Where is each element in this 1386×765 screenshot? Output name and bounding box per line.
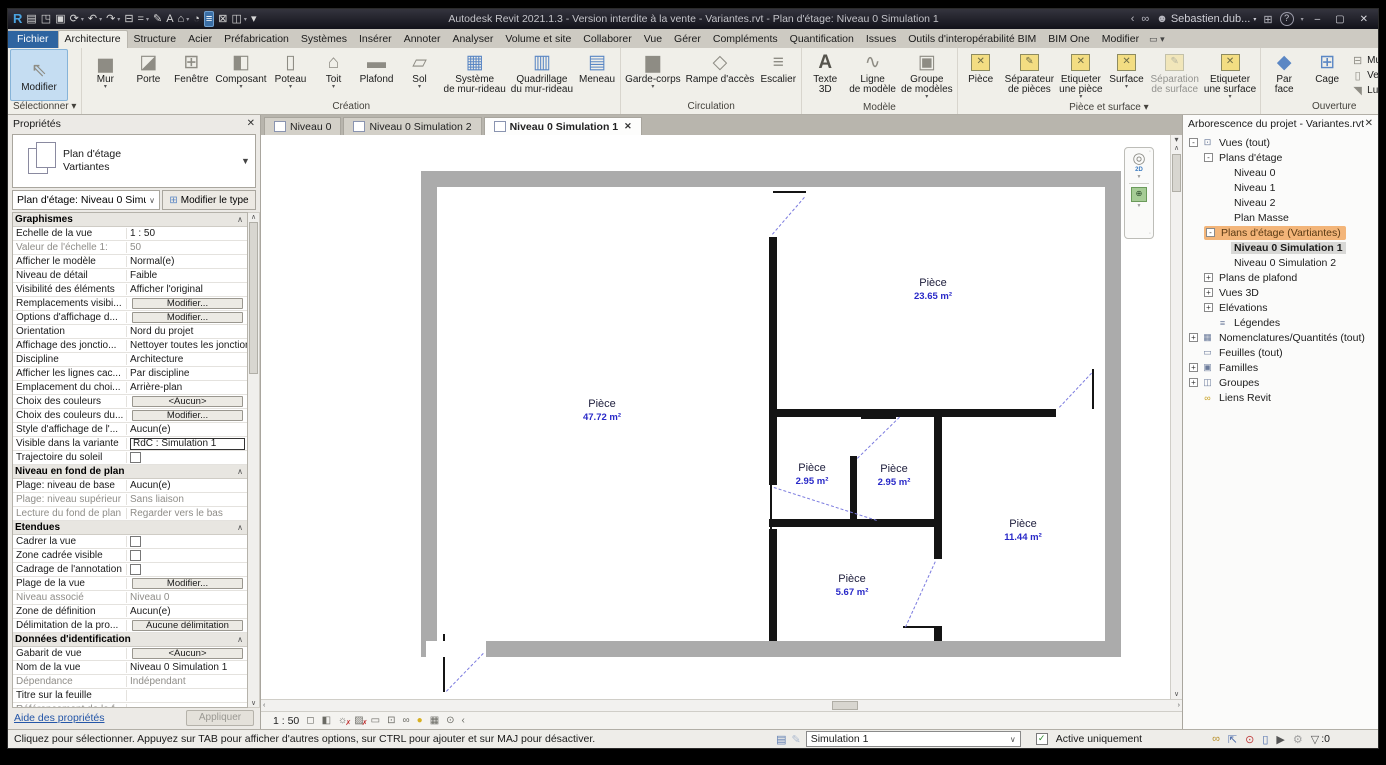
wall-opening-button[interactable]: ⊟Mur	[1351, 53, 1378, 67]
property-value: Aucun(e)	[127, 606, 247, 617]
property-row: Nom de la vueNiveau 0 Simulation 1	[13, 661, 247, 675]
ribbon-tab-compl-ments[interactable]: Compléments	[707, 31, 784, 48]
property-row: DépendanceIndépendant	[13, 675, 247, 689]
show-crop-region-icon[interactable]: ⊡	[387, 715, 395, 726]
ribbon-tab-structure[interactable]: Structure	[128, 31, 183, 48]
property-value: Nettoyer toutes les jonctions de...	[127, 340, 247, 351]
property-button[interactable]: Modifier...	[132, 298, 243, 309]
property-checkbox[interactable]	[130, 564, 141, 575]
tag-area-room-glyph: ✕	[1221, 54, 1240, 71]
view-tab-label: Niveau 0	[290, 121, 331, 133]
property-value: Regarder vers le bas	[127, 508, 247, 519]
ribbon-tab-collaborer[interactable]: Collaborer	[577, 31, 637, 48]
property-row: Visible dans la varianteRdC : Simulation…	[13, 437, 247, 451]
ceiling-label: Plafond	[360, 75, 394, 85]
view-tab-close-icon[interactable]: ✕	[624, 121, 632, 132]
open-icon[interactable]: ◳	[41, 12, 51, 26]
railing-button[interactable]: ▆Garde-corps▾	[623, 49, 683, 101]
window-title: Autodesk Revit 2021.1.3 - Version interd…	[256, 13, 1130, 25]
tree-expander-icon[interactable]: +	[1204, 273, 1213, 282]
wall-opening-label: Mur	[1367, 55, 1378, 66]
room-room-glyph: ✕	[971, 54, 990, 71]
ribbon-tab-vue[interactable]: Vue	[638, 31, 668, 48]
drag-elements-on-selection-icon[interactable]: ▶	[1276, 733, 1284, 746]
reveal-hidden-elements-icon[interactable]: ●	[417, 715, 423, 726]
room-button[interactable]: ✕Pièce	[960, 49, 1002, 102]
model-line-button[interactable]: ∿Lignede modèle	[847, 49, 898, 102]
room-name: Pièce	[1004, 518, 1042, 531]
drawing-area: Niveau 0Niveau 0 Simulation 2Niveau 0 Si…	[261, 115, 1182, 729]
search-icon[interactable]: ∞	[1141, 13, 1149, 25]
property-value[interactable]	[127, 564, 247, 575]
property-name: Niveau associé	[13, 592, 127, 603]
navbar-divider	[1129, 183, 1149, 184]
property-button[interactable]: Modifier...	[132, 410, 243, 421]
view-control-bar: 1 : 50 ◻◧☼✗▨✗▭⊡∞●▦⊙‹	[261, 711, 1182, 729]
curtain-system-button[interactable]: ▦Systèmede mur-rideau	[442, 49, 508, 101]
properties-help-link[interactable]: Aide des propriétés	[14, 712, 104, 724]
app-menu-icon[interactable]: R	[13, 12, 22, 26]
room-area-panel-label[interactable]: Pièce et surface ▾	[958, 102, 1261, 114]
model-panel-label[interactable]: Modèle	[802, 102, 956, 114]
tree-item-niveau-0-simulation-2[interactable]: Niveau 0 Simulation 2	[1183, 255, 1378, 270]
close-hidden-windows-icon[interactable]: ⊠	[218, 12, 227, 26]
project-browser-header: Arborescence du projet - Variantes.rvt ✕	[1183, 115, 1378, 132]
section-collapse-icon[interactable]: ∧	[237, 523, 247, 532]
room-tag[interactable]: Pièce2.95 m²	[796, 462, 829, 488]
door-label: Porte	[136, 75, 160, 85]
tree-item-niveau-2[interactable]: Niveau 2	[1183, 195, 1378, 210]
opening-buttons: ◆Parface⊞Cage⊟Mur▯Vertical◥Lucarne	[1261, 48, 1378, 101]
property-button[interactable]: Aucune délimitation	[132, 620, 243, 631]
area-boundary-icon: ✎	[1165, 50, 1184, 75]
home-icon[interactable]: ▤	[26, 12, 36, 26]
ceiling-button[interactable]: ▬Plafond	[356, 49, 398, 101]
zoom-menu-arrow-icon[interactable]: ▼	[1137, 203, 1142, 209]
room-label: Pièce	[968, 75, 993, 85]
section-title: Données d'identification	[15, 634, 131, 645]
section-title: Etendues	[15, 522, 60, 533]
door-button[interactable]: ◪Porte	[127, 49, 169, 101]
room-tag[interactable]: Pièce11.44 m²	[1004, 518, 1042, 544]
drawing-canvas[interactable]: Pièce23.65 m²Pièce47.72 m²Pièce2.95 m²Pi…	[261, 135, 1170, 699]
project-browser-title: Arborescence du projet - Variantes.rvt	[1188, 118, 1364, 130]
floor-plan[interactable]: Pièce23.65 m²Pièce47.72 m²Pièce2.95 m²Pi…	[421, 171, 1121, 657]
ribbon-tab-architecture[interactable]: Architecture	[58, 30, 128, 48]
tree-item-label: Plans d'étage (Vartiantes)	[1218, 227, 1344, 239]
properties-close-icon[interactable]: ✕	[247, 118, 255, 129]
property-value[interactable]: Modifier...	[127, 409, 247, 422]
property-value[interactable]	[127, 536, 247, 547]
close-button[interactable]: ✕	[1356, 14, 1372, 25]
minimize-button[interactable]: –	[1311, 14, 1325, 25]
instance-selector-arrow-icon: ∨	[146, 196, 155, 205]
view-tab-niveau-0-simulation-1[interactable]: Niveau 0 Simulation 1✕	[484, 117, 642, 135]
property-name: Choix des couleurs	[13, 396, 127, 407]
vscroll-up-icon[interactable]: ∧	[1174, 144, 1179, 152]
room-tag[interactable]: Pièce5.67 m²	[836, 573, 869, 599]
tree-item-groupes[interactable]: +◫Groupes	[1183, 375, 1378, 390]
ribbon-tab-volume-et-site[interactable]: Volume et site	[499, 31, 577, 48]
section-collapse-icon[interactable]: ∧	[237, 467, 247, 476]
property-name: Afficher les lignes cac...	[13, 368, 127, 379]
instance-selector[interactable]: Plan d'étage: Niveau 0 Simulation 1 ∨	[12, 190, 160, 210]
ribbon-tab-quantification[interactable]: Quantification	[784, 31, 860, 48]
viewtab-overflow-arrow-icon[interactable]: ▾	[1174, 135, 1178, 144]
property-row: Afficher le modèleNormal(e)	[13, 255, 247, 269]
temporary-hide-isolate-icon[interactable]: ∞	[403, 715, 410, 726]
roof-button[interactable]: ⌂Toit▾	[313, 49, 355, 101]
tree-item-vues-3d[interactable]: +Vues 3D	[1183, 285, 1378, 300]
room-tag[interactable]: Pièce47.72 m²	[583, 398, 621, 424]
detail-level-icon[interactable]: ◧	[322, 715, 331, 726]
section-graphismes[interactable]: Graphismes∧	[13, 213, 247, 227]
measure-icon[interactable]: =	[138, 12, 144, 26]
section-donn-es-d-identification[interactable]: Données d'identification∧	[13, 633, 247, 647]
view-tab-niveau-0-simulation-2[interactable]: Niveau 0 Simulation 2	[343, 117, 481, 135]
hscroll-right-icon[interactable]: ›	[1178, 702, 1182, 709]
ribbon-tab-modifier[interactable]: Modifier	[1096, 31, 1145, 48]
property-name: Plage: niveau de base	[13, 480, 127, 491]
model-text-button[interactable]: ATexte3D	[804, 49, 846, 102]
vertical-scrollbar[interactable]: ▾ ∧ ∨	[1170, 135, 1182, 699]
property-value: Aucun(e)	[127, 424, 247, 435]
collapse-search-icon[interactable]: ‹	[1131, 13, 1135, 25]
tree-item-niveau-0[interactable]: Niveau 0	[1183, 165, 1378, 180]
shadows-off-mark: ✗	[362, 719, 368, 727]
tag-area-button[interactable]: ✕Etiqueterune surface▾	[1202, 49, 1258, 102]
area-button[interactable]: ✕Surface▾	[1106, 49, 1148, 102]
property-value[interactable]: Modifier...	[127, 311, 247, 324]
stair-button[interactable]: ≡Escalier	[757, 49, 799, 101]
curtain-grid-button[interactable]: ▥Quadrillagedu mur-rideau	[509, 49, 575, 101]
ribbon-display-toggle[interactable]: ▭ ▾	[1149, 34, 1165, 48]
property-checkbox[interactable]	[130, 550, 141, 561]
worksharing-display-icon[interactable]: ▦	[430, 715, 439, 726]
plan-wall	[903, 626, 936, 628]
shaft-opening-button[interactable]: ⊞Cage	[1306, 49, 1348, 101]
door-swing-dashed-line	[446, 653, 484, 692]
save-icon[interactable]: ▣	[55, 12, 65, 26]
circulation-panel-label[interactable]: Circulation	[621, 101, 801, 114]
account-menu[interactable]: ☻ Sebastien.dub... ▾	[1156, 13, 1256, 25]
property-button[interactable]: Modifier...	[132, 578, 243, 589]
tag-room-room-glyph: ✕	[1071, 54, 1090, 71]
tree-item-nomenclatures-quantit-s-tout-[interactable]: +▦Nomenclatures/Quantités (tout)	[1183, 330, 1378, 345]
tree-item-niveau-1[interactable]: Niveau 1	[1183, 180, 1378, 195]
opening-by-face-button[interactable]: ◆Parface	[1263, 49, 1305, 101]
scroll-up-icon[interactable]: ∧	[251, 213, 256, 221]
tree-item-plans-d-tage[interactable]: -Plans d'étage	[1183, 150, 1378, 165]
restore-button[interactable]: ▢	[1331, 14, 1348, 25]
hscroll-left-icon[interactable]: ‹	[261, 702, 265, 709]
property-row: Cadrer la vue	[13, 535, 247, 549]
section-icon[interactable]: ◔	[193, 12, 200, 26]
model-text-label: Texte3D	[813, 75, 837, 95]
property-name: Zone de définition	[13, 606, 127, 617]
tree-item-plans-de-plafond[interactable]: +Plans de plafond	[1183, 270, 1378, 285]
select-pinned-elements-icon[interactable]: ⊙	[1245, 733, 1254, 746]
text-icon[interactable]: A	[166, 12, 173, 26]
title-bar: R▤◳▣⟳▾↶▾↷▾⊟=▾✎A⌂▾◔≡⊠◫▾▾ Autodesk Revit 2…	[8, 9, 1378, 29]
ribbon-tab-outils-d-interop-rabilit-bim[interactable]: Outils d'interopérabilité BIM	[902, 31, 1042, 48]
view-scale[interactable]: 1 : 50	[273, 715, 299, 727]
redo-icon[interactable]: ↷	[106, 12, 115, 26]
model-group-button[interactable]: ▣Groupede modèles▾	[899, 49, 955, 102]
section-niveau-en-fond-de-plan[interactable]: Niveau en fond de plan∧	[13, 465, 247, 479]
area-arrow-icon: ▾	[1125, 85, 1128, 91]
property-value[interactable]	[127, 452, 247, 463]
ribbon-panel-room-area: ✕Pièce✎Séparateurde pièces✕Etiqueterune …	[958, 48, 1262, 114]
tree-expander-icon[interactable]: +	[1204, 288, 1213, 297]
properties-scrollbar[interactable]: ∧ ∨	[248, 212, 260, 708]
tree-expander-icon[interactable]: -	[1204, 153, 1213, 162]
measure-arrow-icon[interactable]: ▾	[146, 16, 149, 23]
room-tag[interactable]: Pièce23.65 m²	[914, 277, 952, 303]
property-row: Emplacement du choi...Arrière-plan	[13, 381, 247, 395]
property-row: Niveau de détailFaible	[13, 269, 247, 283]
ribbon-tab-fichier[interactable]: Fichier	[8, 31, 58, 48]
property-value[interactable]: Aucune délimitation	[127, 619, 247, 632]
property-checkbox[interactable]	[130, 452, 141, 463]
property-name: Nom de la vue	[13, 662, 127, 673]
property-name: Valeur de l'échelle 1:	[13, 242, 127, 253]
opening-panel-label[interactable]: Ouverture	[1261, 101, 1378, 114]
ribbon-tab-issues[interactable]: Issues	[860, 31, 902, 48]
plan-wall	[934, 626, 942, 641]
project-browser-close-icon[interactable]: ✕	[1365, 118, 1373, 129]
properties-scroll-thumb[interactable]	[249, 222, 258, 374]
print-icon[interactable]: ⊟	[124, 12, 133, 26]
instance-selector-row: Plan d'étage: Niveau 0 Simulation 1 ∨ ⊞ …	[12, 190, 256, 210]
modify-button[interactable]: ⇖Modifier	[10, 49, 68, 101]
manage-variants-icon[interactable]: ▤	[776, 733, 786, 746]
switch-windows-icon[interactable]: ◫	[232, 12, 242, 26]
vertical-opening-label: Vertical	[1367, 70, 1378, 81]
room-separator-button[interactable]: ✎Séparateurde pièces	[1003, 49, 1056, 102]
undo-icon[interactable]: ↶	[88, 12, 97, 26]
tree-item-plan-masse[interactable]: Plan Masse	[1183, 210, 1378, 225]
sync-with-central-icon[interactable]: ⟳	[70, 12, 79, 26]
tag-room-arrow-icon: ▾	[1079, 95, 1082, 101]
property-name: Visible dans la variante	[13, 438, 127, 449]
tree-expander-icon[interactable]: +	[1204, 303, 1213, 312]
views-icon: ⊡	[1201, 137, 1214, 148]
app-store-icon[interactable]: ⊞	[1263, 13, 1272, 26]
hscroll-thumb[interactable]	[832, 701, 858, 710]
tree-item-label: Feuilles (tout)	[1216, 347, 1286, 359]
steering-wheel-icon[interactable]: ◎	[1132, 151, 1145, 166]
curtain-grid-label: Quadrillagedu mur-rideau	[511, 75, 573, 95]
room-name: Pièce	[914, 277, 952, 290]
tag-area-arrow-icon: ▾	[1229, 95, 1232, 101]
property-name: Titre sur la feuille	[13, 690, 127, 701]
property-button[interactable]: <Aucun>	[132, 396, 243, 407]
room-tag[interactable]: Pièce2.95 m²	[878, 463, 911, 489]
ribbon-tab-pr-fabrication[interactable]: Préfabrication	[218, 31, 295, 48]
room-area: 5.67 m²	[836, 586, 869, 599]
section-etendues[interactable]: Etendues∧	[13, 521, 247, 535]
property-name: Plage: niveau supérieur	[13, 494, 127, 505]
crop-region-icon[interactable]: ▭	[371, 715, 380, 726]
tree-item-feuilles-tout-[interactable]: ▭Feuilles (tout)	[1183, 345, 1378, 360]
help-icon[interactable]: ?	[1280, 12, 1294, 26]
tree-item-label: Niveau 0	[1231, 167, 1278, 179]
area-boundary-label: Séparationde surface	[1151, 75, 1199, 95]
variants-toolbar: ▤✎ Simulation 1 ∨ ✓ Active uniquement	[776, 731, 1142, 747]
select-panel-label[interactable]: Sélectionner ▾	[8, 101, 81, 114]
property-row: Plage: niveau de baseAucun(e)	[13, 479, 247, 493]
stair-icon: ≡	[773, 50, 784, 75]
type-selector-arrow-icon[interactable]: ▼	[241, 156, 255, 166]
view-tab-niveau-0[interactable]: Niveau 0	[264, 117, 341, 135]
property-row: Niveau associéNiveau 0	[13, 591, 247, 605]
ribbon-tab-annoter[interactable]: Annoter	[398, 31, 447, 48]
property-value[interactable]: RdC : Simulation 1	[127, 438, 247, 450]
property-button[interactable]: <Aucun>	[132, 648, 243, 659]
property-value[interactable]: <Aucun>	[127, 647, 247, 660]
sync-with-central-arrow-icon[interactable]: ▾	[81, 16, 84, 23]
constraints-icon[interactable]: ⊙	[446, 715, 454, 726]
switch-windows-arrow-icon[interactable]: ▾	[244, 16, 247, 23]
tree-expander-icon[interactable]: +	[1189, 363, 1198, 372]
tree-expander-icon[interactable]: -	[1189, 138, 1198, 147]
vscroll-down-icon[interactable]: ∨	[1174, 690, 1179, 698]
component-button[interactable]: ◧Composant▾	[213, 49, 268, 101]
floor-icon: ▱	[412, 50, 427, 75]
shadows-icon[interactable]: ▨✗	[354, 715, 363, 726]
tree-item-niveau-0-simulation-1[interactable]: Niveau 0 Simulation 1	[1183, 240, 1378, 255]
visual-style-icon[interactable]: ◻	[306, 715, 314, 726]
property-value[interactable]: Modifier...	[127, 297, 247, 310]
scroll-down-icon[interactable]: ∨	[251, 699, 256, 707]
property-row: Zone de définitionAucun(e)	[13, 605, 247, 619]
zoom-region-icon[interactable]: ⊕	[1131, 187, 1147, 202]
aligned-dimension-icon[interactable]: ✎	[153, 12, 162, 26]
ramp-button[interactable]: ◇Rampe d'accès	[684, 49, 757, 101]
select-underlay-elements-icon[interactable]: ⇱	[1228, 733, 1237, 746]
property-row: Trajectoire du soleil	[13, 451, 247, 465]
room-area: 11.44 m²	[1004, 531, 1042, 544]
active-only-checkbox[interactable]: ✓	[1036, 733, 1048, 745]
ribbon-tab-syst-mes[interactable]: Systèmes	[295, 31, 353, 48]
column-button[interactable]: ▯Poteau▾	[270, 49, 312, 101]
vertical-opening-button[interactable]: ▯Vertical	[1351, 68, 1378, 82]
apply-button[interactable]: Appliquer	[186, 710, 254, 726]
properties-footer: Aide des propriétés Appliquer	[8, 708, 260, 729]
dormer-opening-button[interactable]: ◥Lucarne	[1351, 83, 1378, 97]
floor-button[interactable]: ▱Sol▾	[399, 49, 441, 101]
property-name: Zone cadrée visible	[13, 550, 127, 561]
property-checkbox[interactable]	[130, 536, 141, 547]
tree-expander-icon[interactable]: +	[1189, 378, 1198, 387]
reveal-hidden-icon[interactable]: ⚙	[1293, 733, 1303, 746]
ribbon-tab-analyser[interactable]: Analyser	[446, 31, 499, 48]
properties-header: Propriétés ✕	[8, 115, 260, 132]
property-value[interactable]: <Aucun>	[127, 395, 247, 408]
sun-path-icon[interactable]: ☼✗	[338, 715, 347, 726]
tree-item-plans-d-tage-vartiantes-[interactable]: -Plans d'étage (Vartiantes)	[1183, 225, 1378, 240]
model-group-icon: ▣	[918, 50, 936, 75]
section-title: Graphismes	[15, 214, 73, 225]
section-collapse-icon[interactable]: ∧	[237, 635, 247, 644]
wheel-menu-arrow-icon[interactable]: ▼	[1137, 174, 1142, 180]
property-value: Sans liaison	[127, 494, 247, 505]
tree-item-l-gendes[interactable]: ≡Légendes	[1183, 315, 1378, 330]
selection-toolbar: ∞⇱⊙▯▶⚙▽:0	[1212, 733, 1330, 746]
ribbon-tab-ins-rer[interactable]: Insérer	[353, 31, 398, 48]
tree-item-familles[interactable]: +▣Familles	[1183, 360, 1378, 375]
mullion-button[interactable]: ▤Meneau	[576, 49, 618, 101]
thin-lines-icon[interactable]: ≡	[204, 11, 214, 27]
property-value[interactable]: Modifier...	[127, 577, 247, 590]
property-name: Délimitation de la pro...	[13, 620, 127, 631]
property-row: Echelle de la vue1 : 50	[13, 227, 247, 241]
window-button[interactable]: ⊞Fenêtre	[170, 49, 212, 101]
tag-room-button[interactable]: ✕Etiqueterune pièce▾	[1057, 49, 1104, 102]
property-row: Options d'affichage d...Modifier...	[13, 311, 247, 325]
add-to-variant-set-icon[interactable]: ✎	[791, 733, 800, 746]
property-row: Cadrage de l'annotation	[13, 563, 247, 577]
area-boundary-button[interactable]: ✎Séparationde surface	[1149, 49, 1201, 102]
tree-item-liens-revit[interactable]: ∞Liens Revit	[1183, 390, 1378, 405]
default-3d-view-icon[interactable]: ⌂	[178, 12, 185, 26]
redo-arrow-icon[interactable]: ▾	[117, 16, 120, 23]
room-area: 47.72 m²	[583, 411, 621, 424]
undo-arrow-icon[interactable]: ▾	[99, 16, 102, 23]
room-icon: ✕	[971, 50, 990, 75]
model-group-arrow-icon: ▾	[925, 95, 928, 101]
room-separator-label: Séparateurde pièces	[1005, 75, 1054, 95]
edit-type-button[interactable]: ⊞ Modifier le type	[162, 190, 256, 210]
property-value: Par discipline	[127, 368, 247, 379]
variant-combo-arrow-icon: ∨	[1007, 735, 1016, 744]
tree-item-el-vations[interactable]: +Elévations	[1183, 300, 1378, 315]
creation-panel-label[interactable]: Création	[82, 101, 620, 114]
property-value[interactable]	[127, 550, 247, 561]
property-button[interactable]: Modifier...	[132, 312, 243, 323]
property-row: OrientationNord du projet	[13, 325, 247, 339]
property-value: Niveau 0	[127, 592, 247, 603]
select-links-icon[interactable]: ∞	[1212, 733, 1220, 745]
variant-combo[interactable]: Simulation 1 ∨	[806, 731, 1021, 747]
section-title: Niveau en fond de plan	[15, 466, 124, 477]
property-name: Style d'affichage de l'...	[13, 424, 127, 435]
plan-wall	[861, 417, 896, 419]
section-collapse-icon[interactable]: ∧	[237, 215, 247, 224]
default-3d-view-arrow-icon[interactable]: ▾	[186, 16, 189, 23]
horizontal-scrollbar[interactable]: ‹ ›	[261, 699, 1182, 711]
ribbon: ⇖ModifierSélectionner ▾▅Mur▾◪Porte⊞Fenêt…	[8, 48, 1378, 115]
property-field[interactable]: RdC : Simulation 1	[130, 438, 245, 450]
ribbon-tab-bim-one[interactable]: BIM One	[1042, 31, 1095, 48]
property-value: Indépendant	[127, 676, 247, 687]
selection-filter-icon[interactable]: ▽	[1311, 733, 1319, 746]
ribbon-tab-g-rer[interactable]: Gérer	[668, 31, 707, 48]
vscroll-thumb[interactable]	[1172, 154, 1181, 192]
type-selector[interactable]: Plan d'étage Vartiantes ▼	[12, 134, 256, 188]
ribbon-tab-acier[interactable]: Acier	[182, 31, 218, 48]
wall-button[interactable]: ▅Mur▾	[84, 49, 126, 101]
floor-plan-type-icon	[15, 138, 61, 184]
tree-expander-icon[interactable]: -	[1206, 228, 1215, 237]
collapse-icon[interactable]: ‹	[462, 715, 465, 726]
tree-item-vues-tout-[interactable]: -⊡Vues (tout)	[1183, 135, 1378, 150]
filter-count: :0	[1321, 733, 1330, 745]
select-elements-by-face-icon[interactable]: ▯	[1262, 733, 1268, 746]
modify-label: Modifier	[21, 83, 57, 93]
tree-expander-icon[interactable]: +	[1189, 333, 1198, 342]
